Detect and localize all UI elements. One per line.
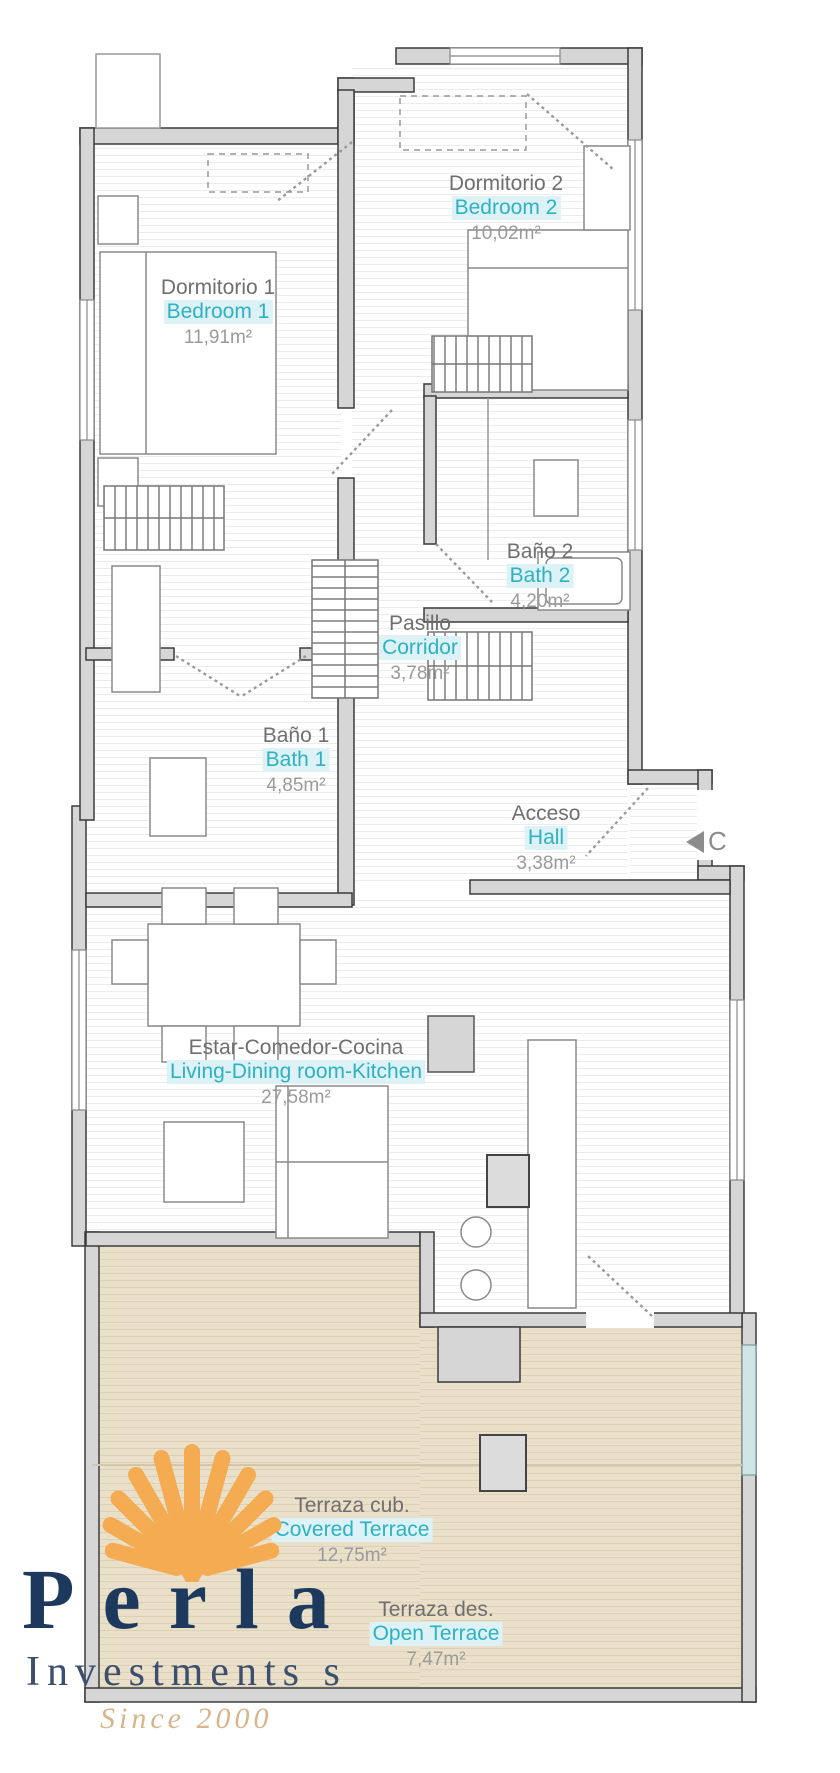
shell-icon xyxy=(0,0,840,1773)
floorplan-page: Dormitorio 1 Bedroom 1 11,91m² Dormitori… xyxy=(0,0,840,1773)
logo-subtitle-text: Investments s xyxy=(26,1650,347,1694)
logo-brand-text: Perla xyxy=(22,1556,358,1642)
logo-tagline-script: Since 2000 xyxy=(100,1702,272,1736)
